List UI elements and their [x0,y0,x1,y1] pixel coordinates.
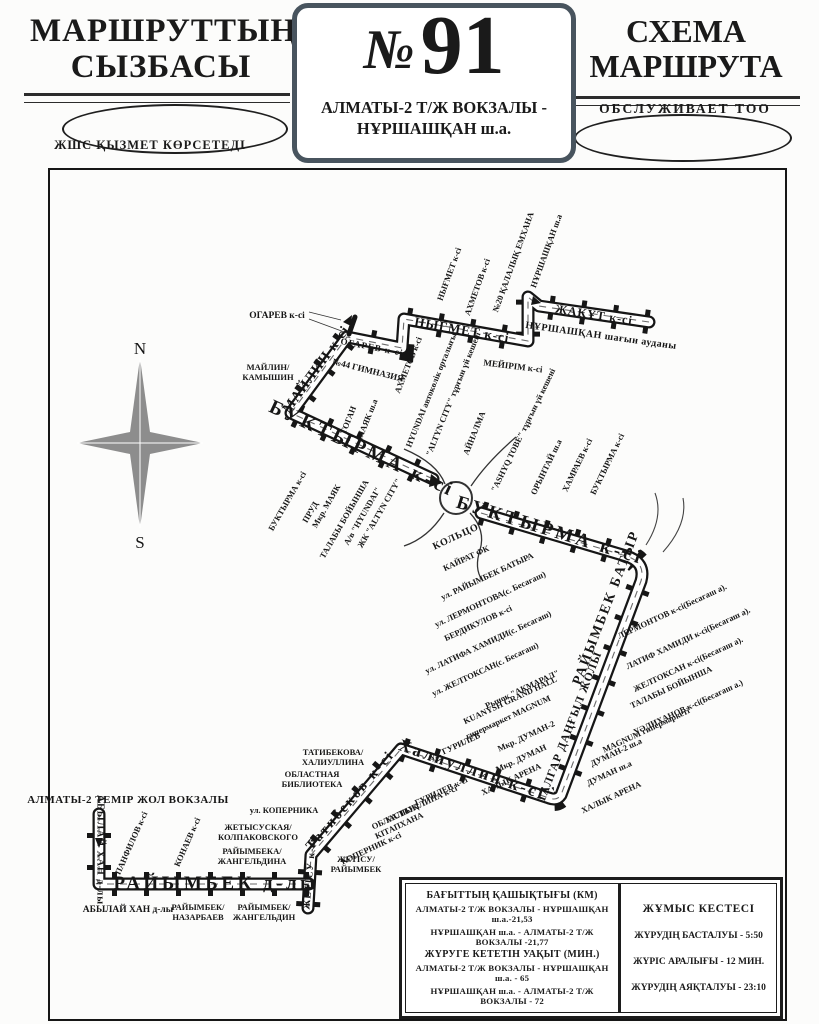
map-label: S [135,533,144,553]
map-label: НҰРШАШҚАН шағын ауданы [525,320,678,352]
map-label: ТАТИБЕКОВА/ ХАЛИУЛЛИНА [302,747,364,767]
map-label: МАЯК ш.а [354,398,379,441]
map-label: АЙНАЛМА [461,410,488,456]
map-label: БУКТЫРМА к-сі [266,470,308,533]
map-label: ОБЛАСТНАЯ БИБЛИОТЕКА [282,769,343,789]
map-label: ХАМРАЕВ к-сі [560,437,594,493]
map-label: МЕЙІРІМ к-сі [483,357,543,374]
map-label: МАЙЛИН/ КАМЫШИН [242,362,293,382]
map-label: ЖЕТІСУ/ РАЙЫМБЕК [331,854,382,874]
map-label: НЫҒМЕТ к-сі [435,246,463,302]
map-label: КОНАЕВ к-сі [172,816,203,868]
distance-time-panel: БАҒЫТТЫҢ ҚАШЫҚТЫҒЫ (КМ) АЛМАТЫ-2 Т/Ж ВОК… [406,884,621,1012]
map-label: ОРЫНТАЙ ш.а [528,438,563,497]
distance-row: АЛМАТЫ-2 Т/Ж ВОКЗАЛЫ - НҰРШАШҚАН ш.а.-21… [408,904,616,924]
map-label: ул. КОПЕРНИКА [250,805,319,815]
info-box-inner: БАҒЫТТЫҢ ҚАШЫҚТЫҒЫ (КМ) АЛМАТЫ-2 Т/Ж ВОК… [405,883,777,1013]
map-label: РАЙЫМБЕКА/ ЖАНГЕЛЬДИНА [218,846,287,866]
map-label: N [134,339,146,359]
map-label: НЫҒМЕТ к-сі [413,314,511,346]
info-box: БАҒЫТТЫҢ ҚАШЫҚТЫҒЫ (КМ) АЛМАТЫ-2 Т/Ж ВОК… [399,877,783,1019]
route-schema-page: МАРШРУТТЫҢ СЫЗБАСЫ СХЕМА МАРШРУТА ЖШС ҚЫ… [0,0,819,1024]
distance-row: НҰРШАШҚАН ш.а. - АЛМАТЫ-2 Т/Ж ВОКЗАЛЫ -2… [408,927,616,947]
map-label: РАЙЫМБЕК/ ЖАНГЕЛЬДИН [233,902,296,922]
map-label: ТОГАН [338,404,358,435]
map-label: ОГАРЕВ к-сі [249,311,305,321]
map-label: НҰРШАШҚАН ш.а [528,213,564,289]
map-label: АХМЕТОВ к-сі [462,257,492,317]
map-label: ЖАҚҰТ к-сі [554,301,634,328]
map-label: ОГАРЕВ к-сі [340,336,404,358]
time-title: ЖҮРУГЕ КЕТЕТІН УАҚЫТ (МИН.) [408,949,616,960]
map-label: АХМЕТОВ к-сі [392,335,424,394]
time-row: НҰРШАШҚАН ш.а. - АЛМАТЫ-2 Т/Ж ВОКЗАЛЫ - … [408,986,616,1006]
schedule-row: ЖҮРІС АРАЛЫҒЫ - 12 МИН. [623,957,774,967]
time-row: АЛМАТЫ-2 Т/Ж ВОКЗАЛЫ - НҰРШАШҚАН ш.а. - … [408,963,616,983]
map-label: РАЙЫМБЕК/ НАЗАРБАЕВ [171,902,224,922]
map-label: РАЙЫМБЕК д-лы [114,873,319,895]
map-label: ПАНФИЛОВ к-сі [113,810,150,876]
map-label: ЖЕТЫСУСКАЯ/ КОЛПАКОВСКОГО [218,822,298,842]
map-label: АБЫЛАЙ ХАН д-лы [95,795,106,905]
map-label: КАЙРАТ ФК [441,543,490,573]
map-label: №20 ҚАЛАЛЫҚ ЕМХАНА [490,211,536,314]
map-labels-layer: NSЖАҚҰТ к-сіНҰРШАШҚАН шағын ауданыНЫҒМЕТ… [0,0,819,1024]
schedule-title: ЖҰМЫС КЕСТЕСІ [623,903,774,915]
map-label: АБЫЛАЙ ХАН д-лы [83,905,173,915]
schedule-row: ЖҮРУДІҢ АЯҚТАЛУЫ - 23:10 [623,983,774,993]
schedule-panel: ЖҰМЫС КЕСТЕСІ ЖҮРУДІҢ БАСТАЛУЫ - 5:50 ЖҮ… [621,884,776,1012]
distance-title: БАҒЫТТЫҢ ҚАШЫҚТЫҒЫ (КМ) [408,890,616,901]
map-label: №44 ГИМНАЗИЯ [331,356,404,383]
map-label: АЛМАТЫ-2 ТЕМІР ЖОЛ ВОКЗАЛЫ [27,794,229,806]
schedule-row: ЖҮРУДІҢ БАСТАЛУЫ - 5:50 [623,931,774,941]
